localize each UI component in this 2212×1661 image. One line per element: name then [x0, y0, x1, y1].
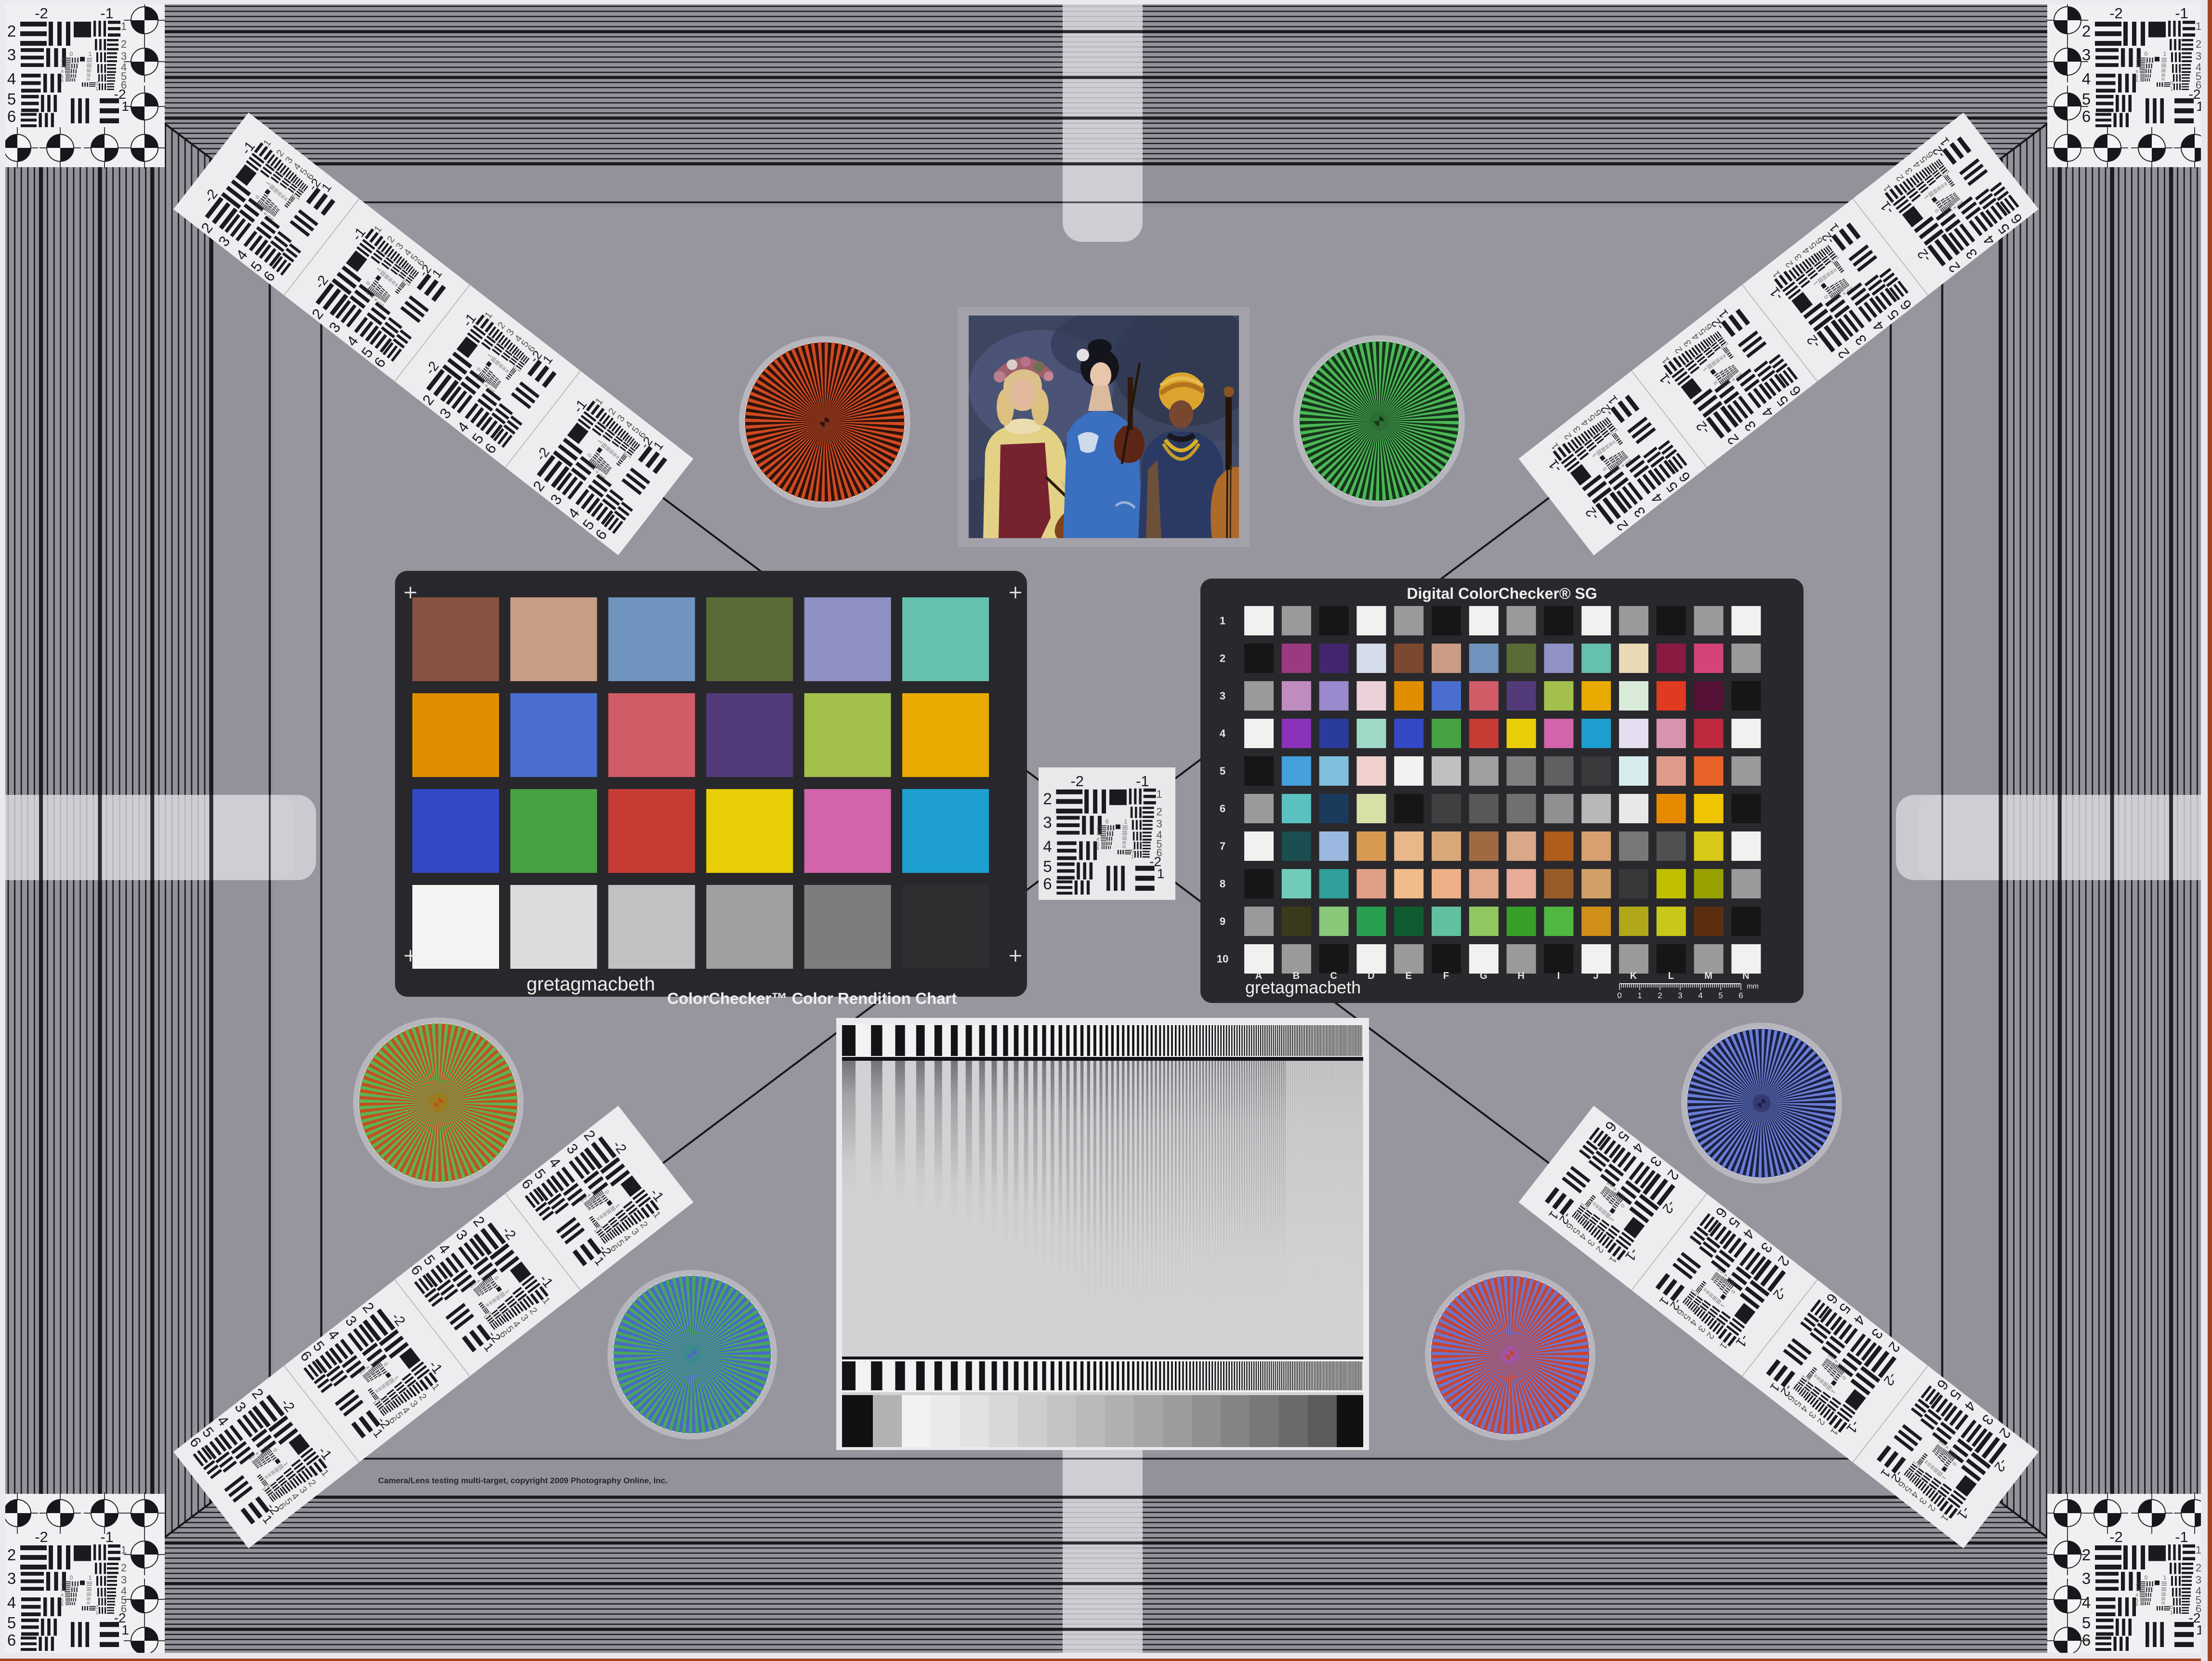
svg-text:5: 5 [1220, 765, 1225, 777]
svg-text:1: 1 [1637, 991, 1642, 1000]
svg-text:E: E [1406, 971, 1412, 981]
svg-text:F: F [1443, 971, 1449, 981]
svg-text:7: 7 [1220, 840, 1225, 852]
svg-text:L: L [1668, 971, 1674, 981]
svg-text:mm: mm [1747, 982, 1759, 990]
svg-text:2: 2 [1658, 991, 1662, 1000]
svg-text:D: D [1368, 971, 1374, 981]
svg-text:ColorChecker™ Color Rendition: ColorChecker™ Color Rendition Chart [667, 989, 957, 1007]
svg-text:3: 3 [1678, 991, 1682, 1000]
svg-text:3: 3 [1220, 690, 1225, 702]
svg-text:N: N [1742, 971, 1749, 981]
svg-text:A: A [1255, 971, 1262, 981]
svg-text:Camera/Lens testing multi-targ: Camera/Lens testing multi-target, copyri… [378, 1476, 668, 1485]
svg-text:2: 2 [1220, 652, 1225, 664]
svg-text:J: J [1593, 971, 1599, 981]
svg-text:gretagmacbeth: gretagmacbeth [527, 974, 655, 995]
svg-text:0: 0 [1617, 991, 1621, 1000]
svg-text:gretagmacbeth: gretagmacbeth [1245, 977, 1361, 997]
svg-text:1: 1 [1220, 615, 1225, 627]
svg-text:G: G [1480, 971, 1488, 981]
svg-text:C: C [1330, 971, 1337, 981]
svg-text:6: 6 [1220, 803, 1225, 815]
svg-text:9: 9 [1220, 915, 1225, 927]
svg-text:6: 6 [1738, 991, 1743, 1000]
svg-text:B: B [1293, 971, 1300, 981]
svg-text:10: 10 [1217, 953, 1228, 965]
svg-text:I: I [1557, 971, 1560, 981]
svg-text:M: M [1704, 971, 1712, 981]
svg-text:4: 4 [1220, 727, 1226, 739]
svg-text:8: 8 [1220, 878, 1225, 890]
svg-text:Digital ColorChecker® SG: Digital ColorChecker® SG [1407, 585, 1597, 602]
svg-text:K: K [1630, 971, 1637, 981]
svg-text:H: H [1517, 971, 1524, 981]
svg-text:4: 4 [1698, 991, 1702, 1000]
svg-text:5: 5 [1718, 991, 1723, 1000]
